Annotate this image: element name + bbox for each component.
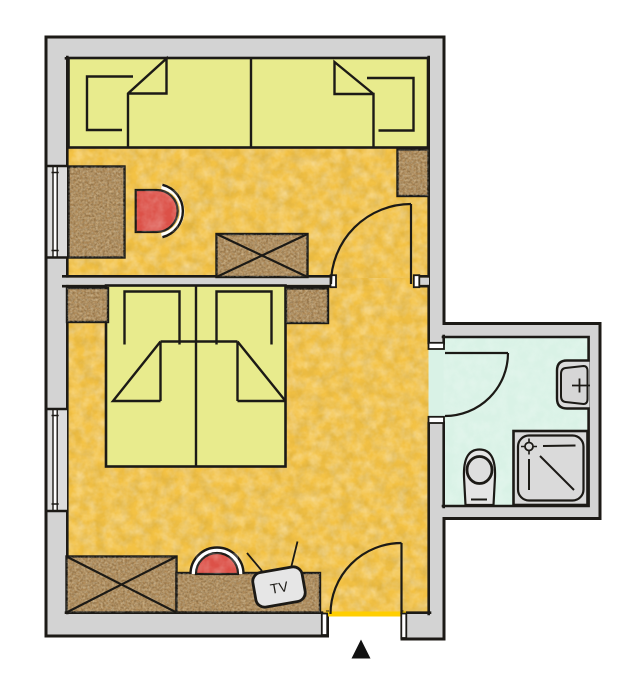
svg-text:TV: TV xyxy=(269,578,290,597)
